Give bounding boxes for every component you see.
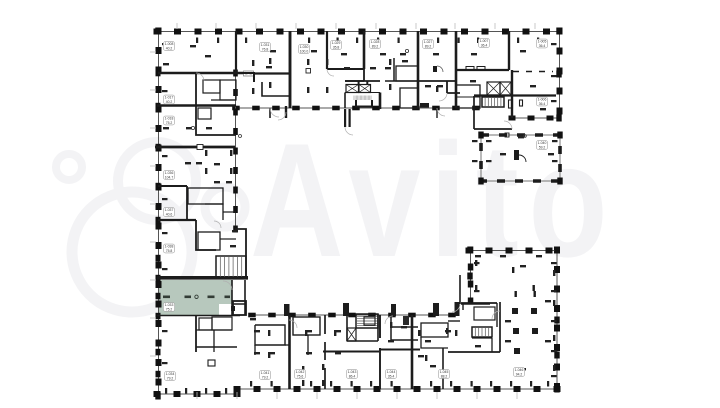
svg-text:89.2: 89.2 — [425, 44, 432, 48]
svg-text:88.2: 88.2 — [441, 374, 448, 378]
svg-text:36.4: 36.4 — [539, 102, 546, 106]
svg-text:40.2: 40.2 — [166, 46, 173, 50]
svg-text:79.2: 79.2 — [167, 376, 174, 380]
svg-text:75.8: 75.8 — [166, 249, 173, 253]
svg-text:35.8: 35.8 — [333, 45, 340, 49]
svg-text:36.4: 36.4 — [539, 44, 546, 48]
svg-text:75.6: 75.6 — [297, 374, 304, 378]
svg-text:100.0: 100.0 — [300, 49, 309, 53]
svg-text:76.8: 76.8 — [262, 47, 269, 51]
svg-text:86.4: 86.4 — [349, 374, 356, 378]
svg-text:40.2: 40.2 — [166, 100, 173, 104]
svg-text:89.2: 89.2 — [372, 44, 379, 48]
svg-text:40.6: 40.6 — [166, 212, 173, 216]
svg-text:75.2: 75.2 — [166, 307, 173, 311]
svg-text:36.4: 36.4 — [481, 43, 488, 47]
svg-text:59.2: 59.2 — [539, 145, 546, 149]
svg-text:35.4: 35.4 — [388, 374, 395, 378]
svg-text:94.2: 94.2 — [516, 372, 523, 376]
svg-text:104.7: 104.7 — [165, 175, 174, 179]
svg-text:75.2: 75.2 — [166, 121, 173, 125]
svg-text:79.2: 79.2 — [262, 375, 269, 379]
